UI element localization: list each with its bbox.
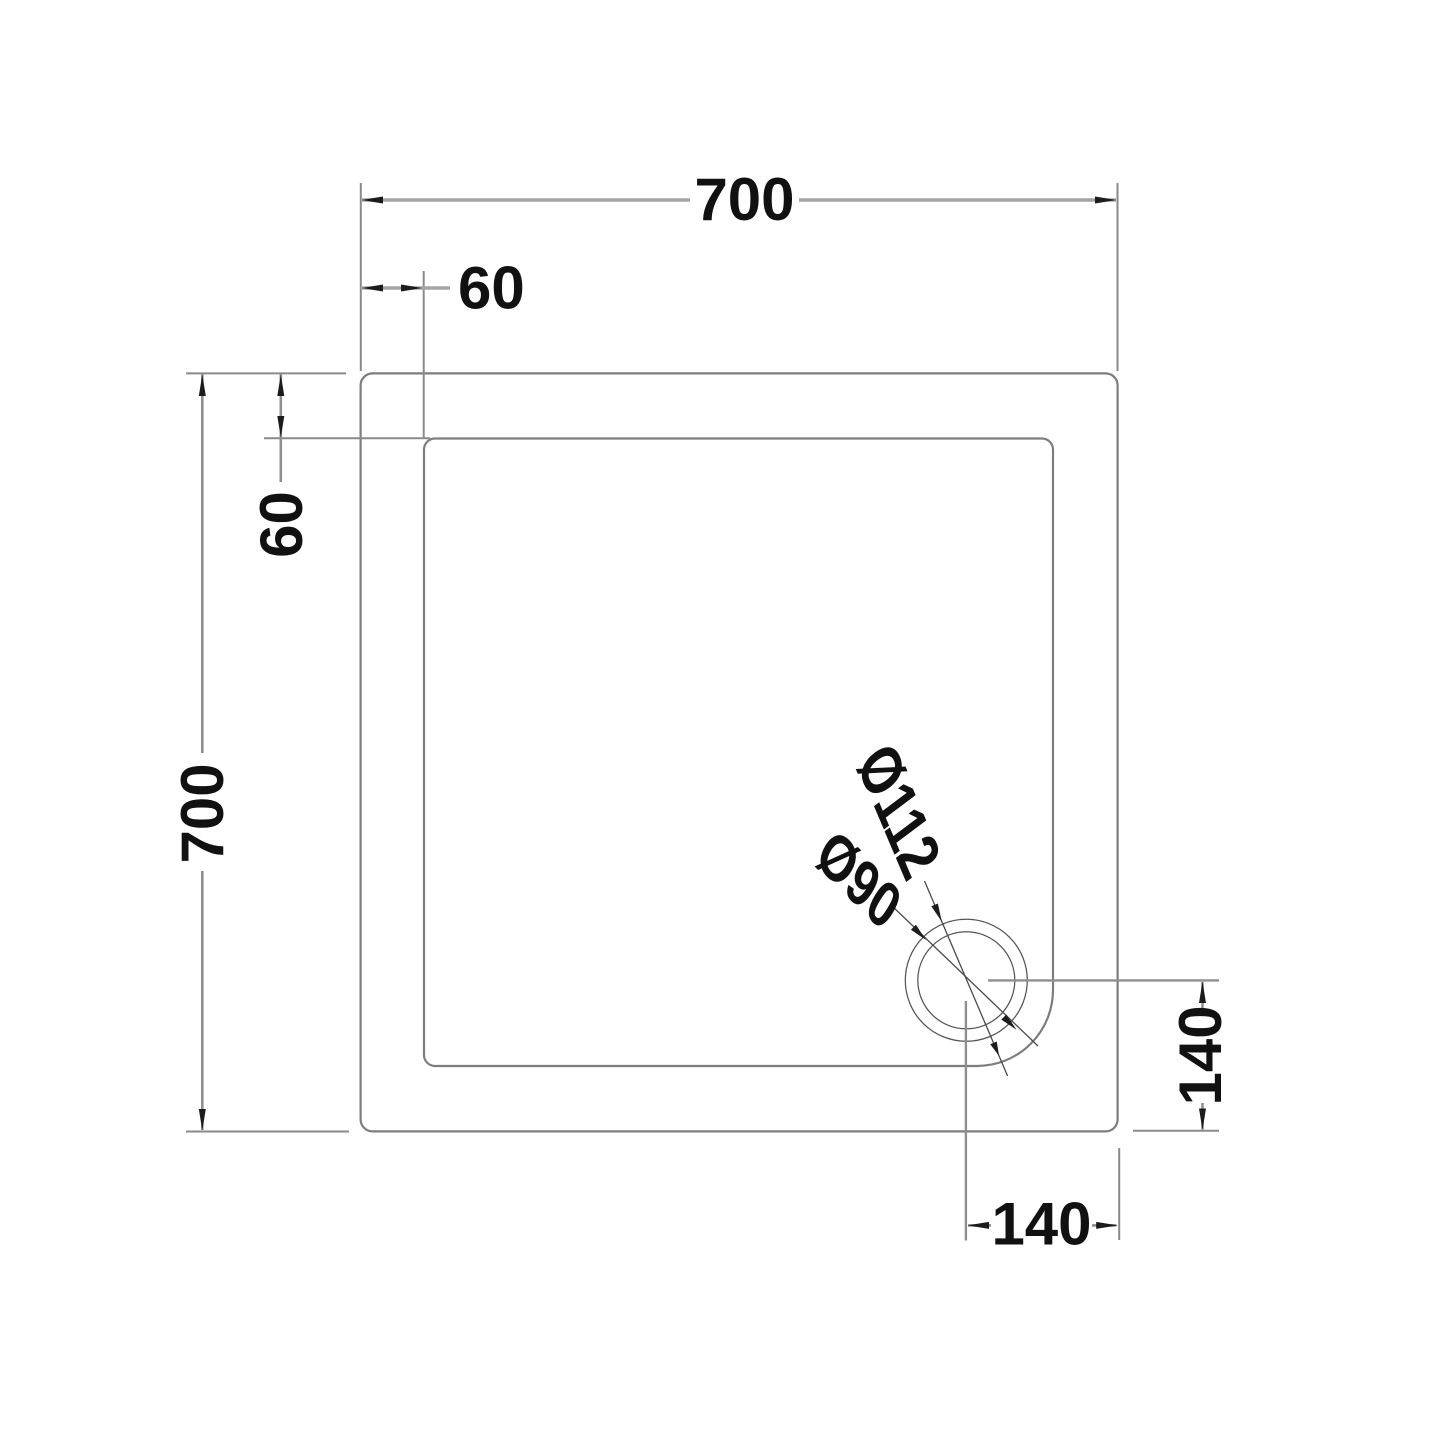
- svg-text:60: 60: [248, 491, 315, 558]
- svg-text:700: 700: [169, 763, 236, 863]
- svg-text:140: 140: [1167, 1005, 1234, 1105]
- svg-text:140: 140: [991, 1191, 1091, 1258]
- svg-text:700: 700: [694, 166, 794, 233]
- svg-text:60: 60: [458, 255, 525, 322]
